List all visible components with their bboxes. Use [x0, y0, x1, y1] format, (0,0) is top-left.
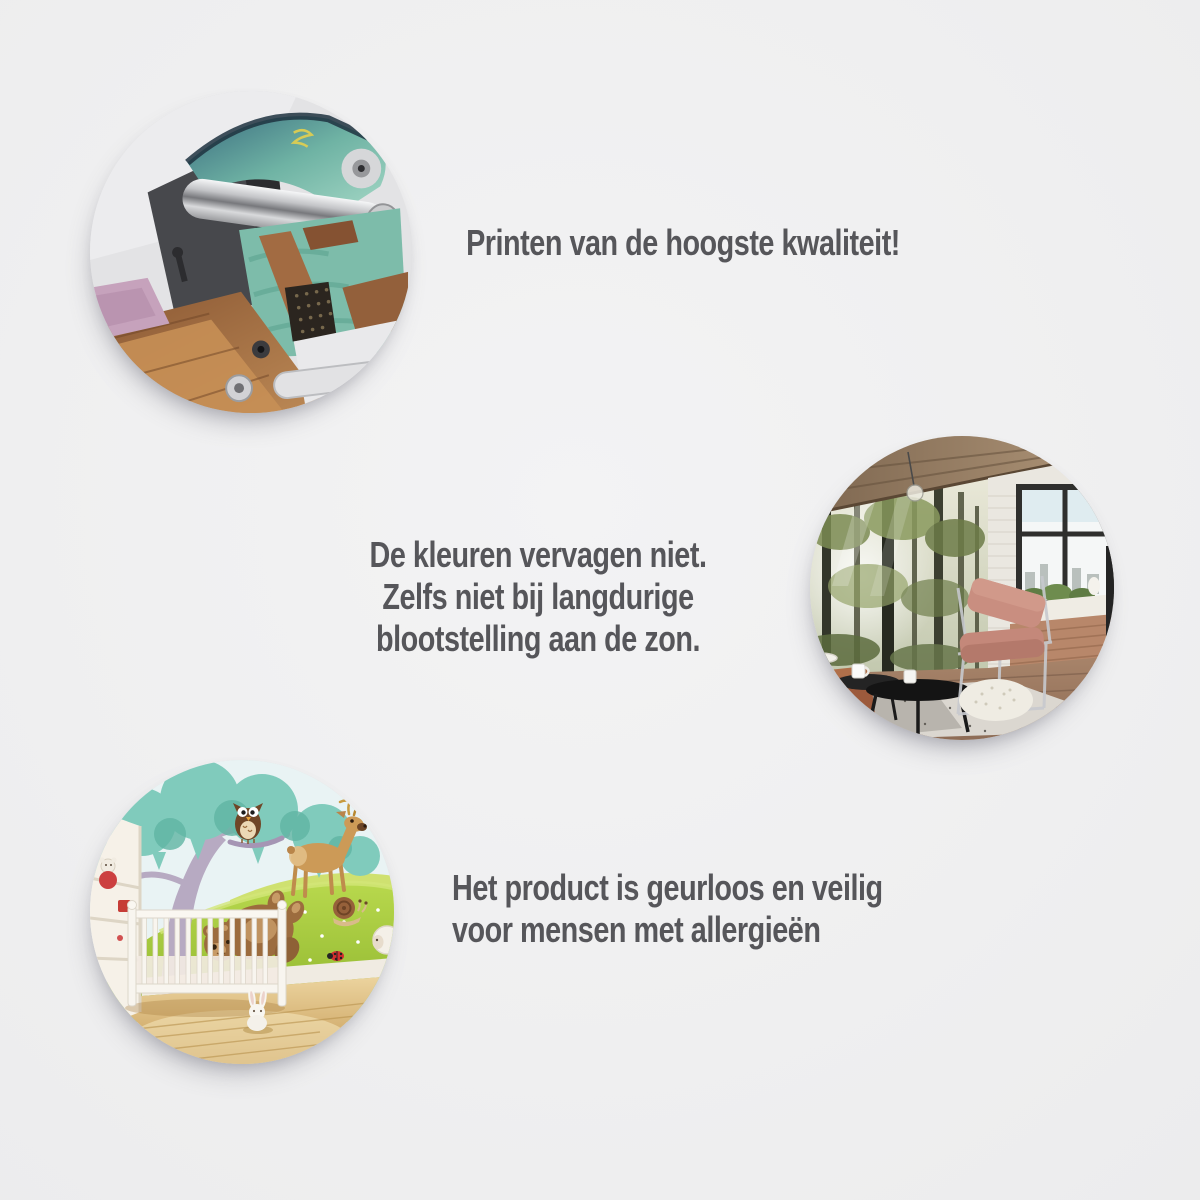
feature-text-fade-resistant: De kleuren vervagen niet. Zelfs niet bij… — [327, 534, 748, 660]
photo-odorless-safe — [90, 760, 394, 1064]
feature-text-line: Zelfs niet bij langdurige — [370, 576, 707, 618]
feature-text-line: De kleuren vervagen niet. — [370, 534, 707, 576]
photo-print-quality — [90, 91, 412, 413]
feature-text-line: Printen van de hoogste kwaliteit! — [466, 222, 900, 264]
feature-text-odorless-safe: Het product is geurloos en veilig voor m… — [452, 867, 990, 951]
feature-text-line: blootstelling aan de zon. — [370, 618, 707, 660]
feature-text-print-quality: Printen van de hoogste kwaliteit! — [412, 222, 954, 264]
product-features-panel: Printen van de hoogste kwaliteit! — [0, 0, 1200, 1200]
printing-machine-photo — [90, 91, 412, 413]
nursery-animal-mural-photo — [90, 760, 394, 1064]
forest-mural-room-photo — [810, 436, 1114, 740]
feature-text-line: Het product is geurloos en veilig — [452, 867, 883, 909]
photo-fade-resistant — [810, 436, 1114, 740]
feature-text-line: voor mensen met allergieën — [452, 909, 883, 951]
